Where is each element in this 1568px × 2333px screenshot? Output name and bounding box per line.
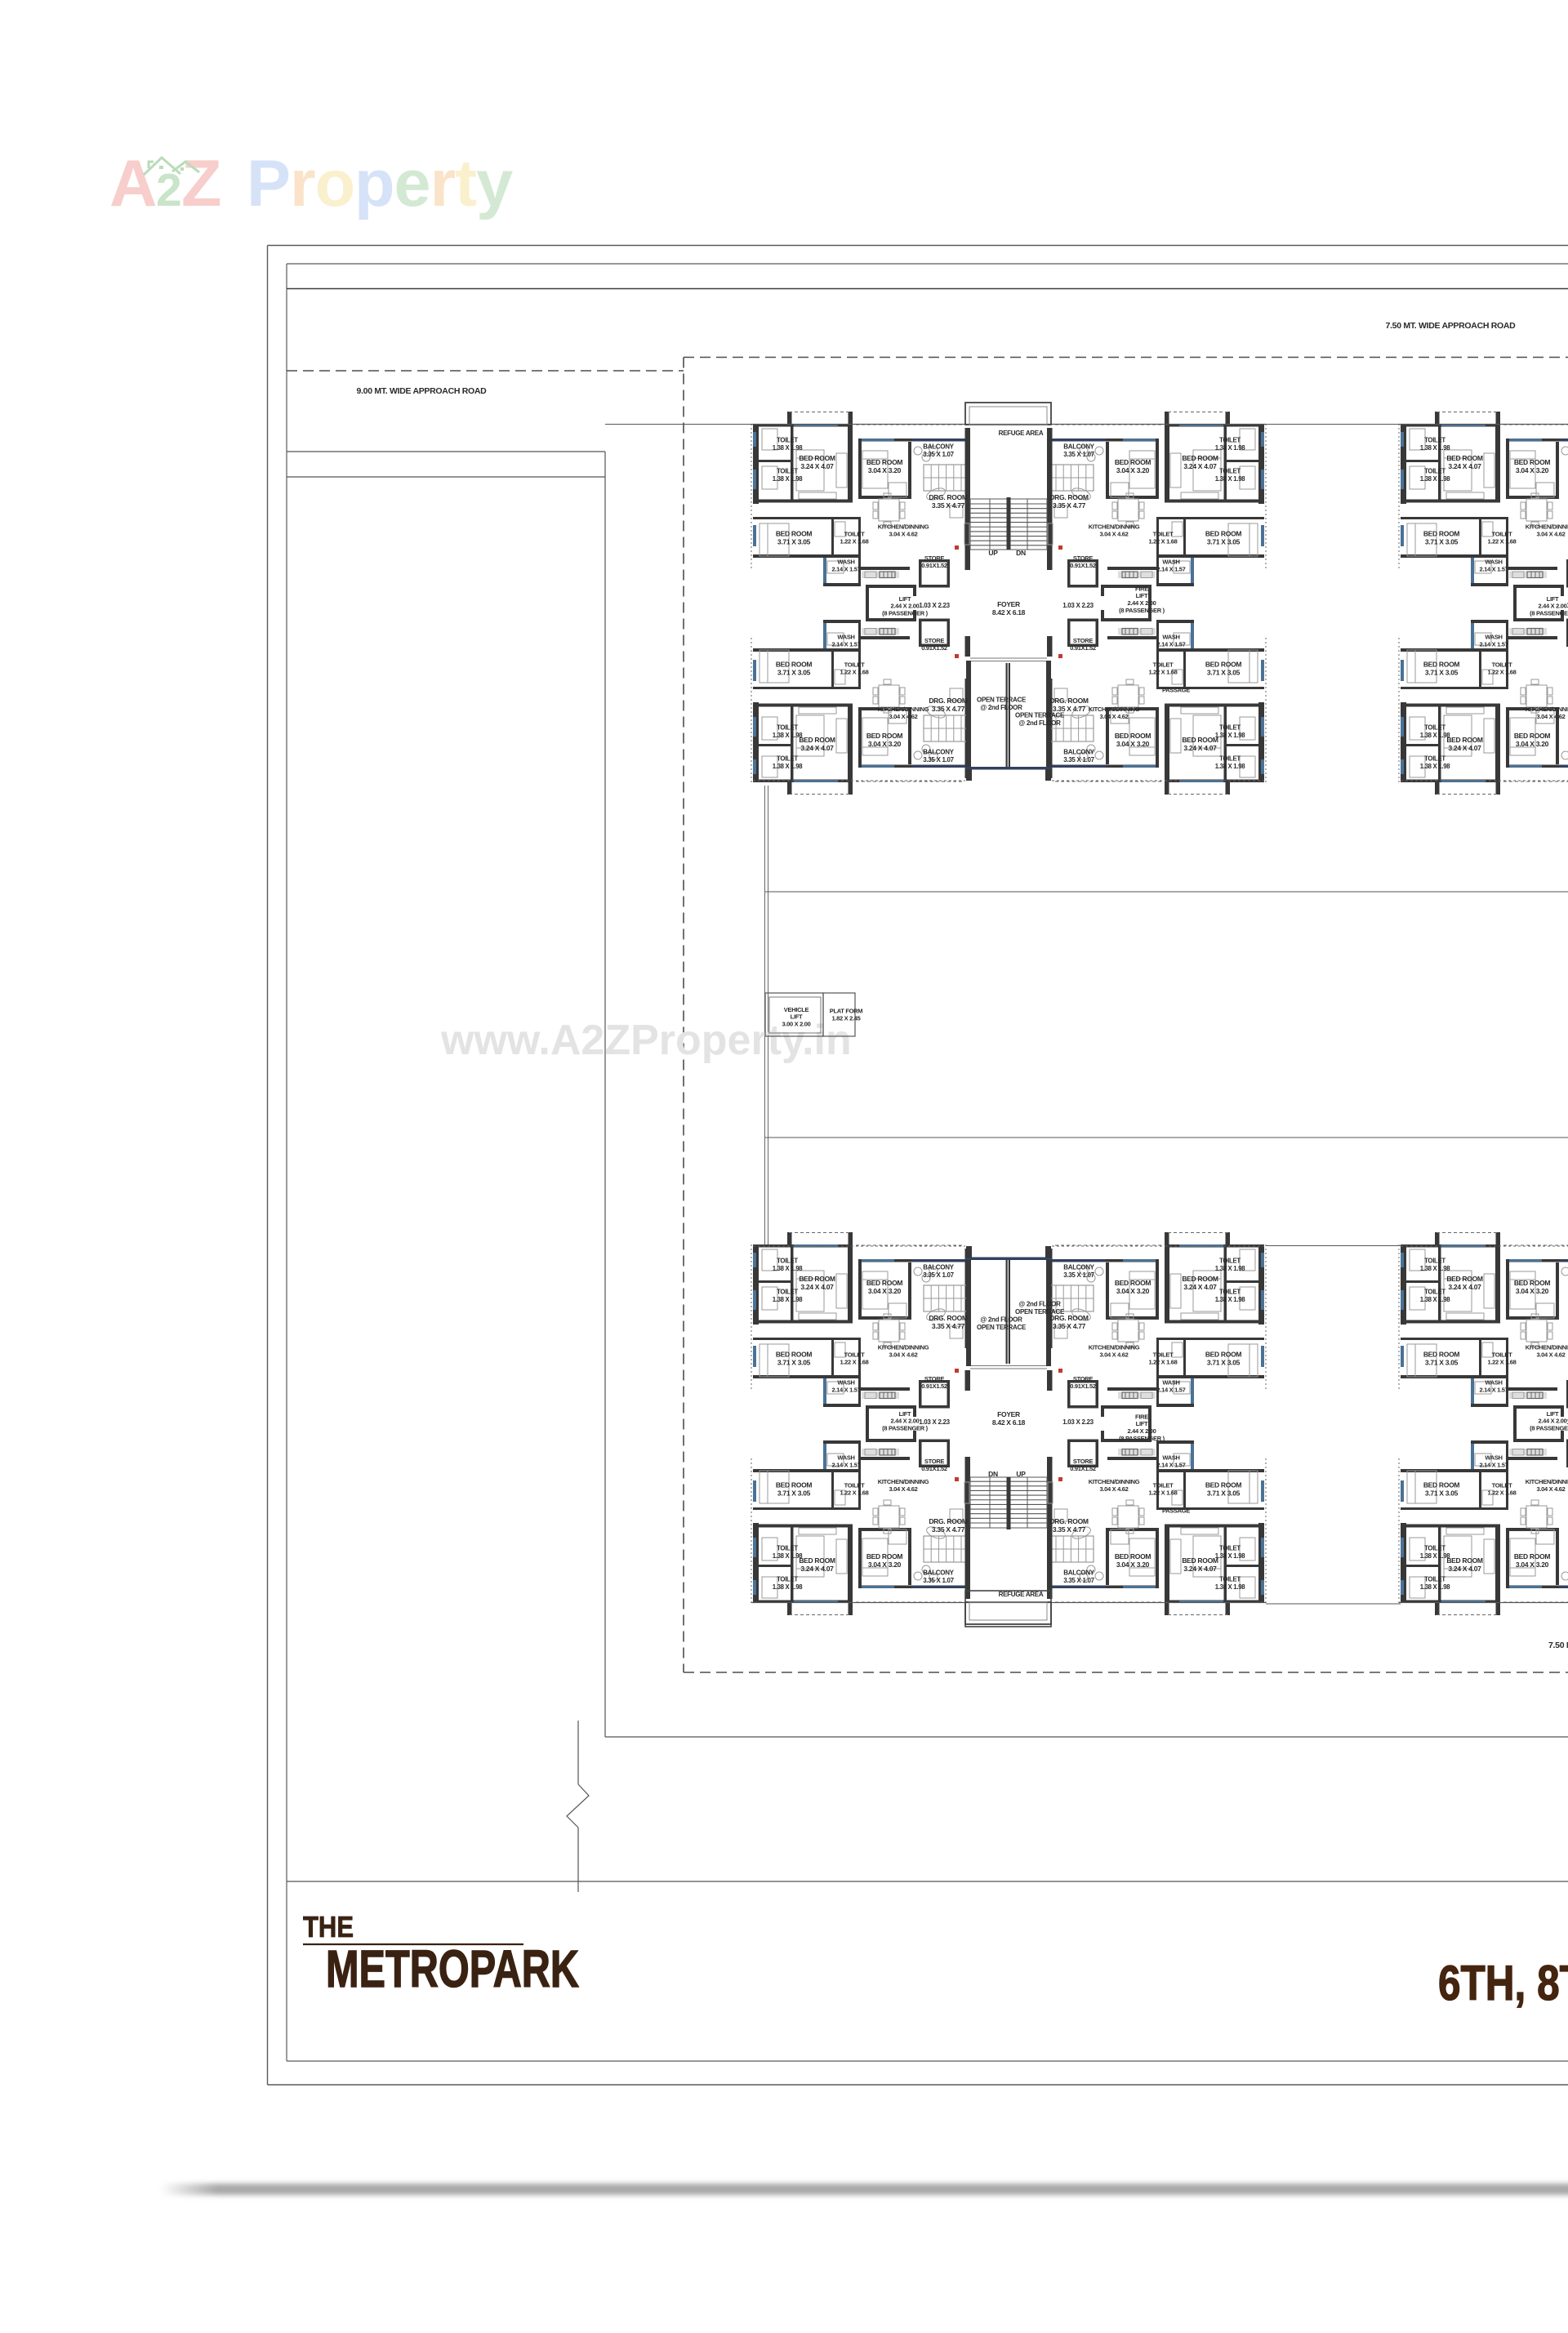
svg-text:1.22 X 1.68: 1.22 X 1.68: [1148, 1489, 1177, 1497]
svg-text:BED ROOM: BED ROOM: [1115, 458, 1151, 466]
svg-text:3.04 X 3.20: 3.04 X 3.20: [1116, 466, 1150, 474]
svg-text:BED ROOM: BED ROOM: [776, 1481, 813, 1489]
svg-text:3.71 X 3.05: 3.71 X 3.05: [777, 537, 811, 545]
svg-text:KITCHEN/DINNING: KITCHEN/DINNING: [1089, 1344, 1140, 1351]
svg-text:2.14 X 1.57: 2.14 X 1.57: [831, 641, 860, 648]
svg-text:0.91X1.52: 0.91X1.52: [1070, 1382, 1096, 1390]
svg-text:TOILET: TOILET: [1424, 1576, 1445, 1583]
svg-text:1.03 X 2.23: 1.03 X 2.23: [1062, 602, 1094, 609]
svg-text:BALCONY: BALCONY: [923, 1264, 954, 1271]
svg-text:1.38 X 1.98: 1.38 X 1.98: [1420, 1296, 1451, 1303]
svg-text:BED ROOM: BED ROOM: [1182, 1556, 1218, 1565]
svg-text:TOILET: TOILET: [1492, 1351, 1512, 1359]
svg-text:BED ROOM: BED ROOM: [1423, 530, 1460, 538]
svg-text:3.04 X 3.20: 3.04 X 3.20: [1116, 740, 1150, 748]
svg-text:7.50 MT. WIDE APPROACH ROAD: 7.50 MT. WIDE APPROACH ROAD: [1386, 321, 1517, 331]
svg-text:3.24 X 4.07: 3.24 X 4.07: [1183, 744, 1217, 752]
svg-text:1.22 X 1.68: 1.22 X 1.68: [840, 1359, 868, 1366]
svg-text:3.35 X 4.77: 3.35 X 4.77: [1053, 1525, 1086, 1534]
svg-text:BED ROOM: BED ROOM: [1205, 530, 1242, 538]
svg-text:TOILET: TOILET: [777, 1576, 798, 1583]
svg-text:1.03 X 2.23: 1.03 X 2.23: [919, 1418, 950, 1426]
svg-text:2.44 X 2.00: 2.44 X 2.00: [1127, 599, 1156, 607]
svg-text:BED ROOM: BED ROOM: [866, 1552, 903, 1561]
svg-text:BED ROOM: BED ROOM: [1205, 1351, 1242, 1359]
svg-text:BED ROOM: BED ROOM: [1423, 1351, 1460, 1359]
svg-text:3.04 X 4.62: 3.04 X 4.62: [1099, 531, 1128, 538]
svg-text:3.24 X 4.07: 3.24 X 4.07: [1448, 1565, 1481, 1573]
svg-text:3.71 X 3.05: 3.71 X 3.05: [777, 668, 811, 676]
svg-text:0.91X1.52: 0.91X1.52: [921, 644, 947, 652]
svg-text:3.35 X 1.07: 3.35 X 1.07: [1063, 451, 1094, 458]
svg-text:2.44 X 2.00: 2.44 X 2.00: [1538, 1418, 1566, 1425]
svg-text:0.91X1.52: 0.91X1.52: [921, 562, 947, 569]
svg-text:3.24 X 4.07: 3.24 X 4.07: [1183, 1283, 1217, 1291]
svg-text:KITCHEN/DINNING: KITCHEN/DINNING: [1526, 706, 1568, 713]
svg-text:3.04 X 3.20: 3.04 X 3.20: [1516, 1561, 1549, 1569]
svg-text:TOILET: TOILET: [1153, 661, 1174, 669]
svg-text:3.04 X 4.62: 3.04 X 4.62: [1099, 1485, 1128, 1493]
svg-text:WASH: WASH: [1485, 1379, 1502, 1387]
svg-text:DRG. ROOM: DRG. ROOM: [1049, 1517, 1089, 1525]
svg-text:BED ROOM: BED ROOM: [776, 530, 813, 538]
svg-text:BED ROOM: BED ROOM: [1514, 1552, 1551, 1561]
svg-text:OPEN TERRACE: OPEN TERRACE: [1015, 712, 1065, 719]
svg-text:STORE: STORE: [1073, 637, 1093, 644]
svg-text:3.04 X 3.20: 3.04 X 3.20: [868, 740, 902, 748]
svg-text:KITCHEN/DINNING: KITCHEN/DINNING: [1526, 523, 1568, 531]
svg-text:BED ROOM: BED ROOM: [1115, 1552, 1151, 1561]
svg-text:3.04 X 4.62: 3.04 X 4.62: [1536, 1351, 1565, 1359]
svg-text:(8 PASSENGER ): (8 PASSENGER ): [1530, 609, 1568, 617]
svg-text:TOILET: TOILET: [777, 724, 798, 732]
svg-text:3.71 X 3.05: 3.71 X 3.05: [1207, 668, 1241, 676]
svg-text:DRG. ROOM: DRG. ROOM: [929, 697, 968, 705]
svg-text:3.04 X 3.20: 3.04 X 3.20: [1116, 1561, 1150, 1569]
svg-text:TOILET: TOILET: [1424, 1258, 1445, 1265]
svg-text:WASH: WASH: [837, 1454, 854, 1462]
svg-text:TOILET: TOILET: [1219, 1576, 1241, 1583]
svg-text:0.91X1.52: 0.91X1.52: [1070, 644, 1096, 652]
svg-text:1.38 X 1.98: 1.38 X 1.98: [1215, 763, 1246, 770]
svg-text:3.35 X 1.07: 3.35 X 1.07: [1063, 1271, 1094, 1279]
svg-text:TOILET: TOILET: [844, 661, 865, 669]
svg-text:BED ROOM: BED ROOM: [799, 736, 835, 744]
svg-text:OPEN TERRACE: OPEN TERRACE: [977, 697, 1027, 704]
svg-text:UP: UP: [1016, 1470, 1026, 1478]
svg-text:TOILET: TOILET: [777, 1258, 798, 1265]
svg-text:1.22 X 1.68: 1.22 X 1.68: [840, 1489, 868, 1497]
svg-text:BED ROOM: BED ROOM: [776, 661, 813, 669]
svg-text:(8 PASSENGER ): (8 PASSENGER ): [1530, 1424, 1568, 1431]
svg-text:STORE: STORE: [924, 637, 944, 644]
svg-text:1.22 X 1.68: 1.22 X 1.68: [1487, 1489, 1516, 1497]
svg-text:BED ROOM: BED ROOM: [1514, 458, 1551, 466]
svg-text:3.04 X 4.62: 3.04 X 4.62: [1536, 1485, 1565, 1493]
svg-text:2.14 X 1.57: 2.14 X 1.57: [1479, 1462, 1508, 1469]
svg-text:@ 2nd FLOOR: @ 2nd FLOOR: [980, 1316, 1022, 1324]
svg-text:3.04 X 4.62: 3.04 X 4.62: [1536, 713, 1565, 720]
svg-text:STORE: STORE: [924, 554, 944, 562]
svg-text:PASSAGE: PASSAGE: [1162, 687, 1190, 694]
svg-text:BED ROOM: BED ROOM: [1115, 732, 1151, 740]
svg-text:1.38 X 1.98: 1.38 X 1.98: [1215, 475, 1246, 483]
svg-text:REFUGE AREA: REFUGE AREA: [999, 430, 1044, 437]
svg-text:0.91X1.52: 0.91X1.52: [921, 1382, 947, 1390]
svg-text:WASH: WASH: [1162, 1454, 1179, 1462]
svg-text:1.38 X 1.98: 1.38 X 1.98: [1215, 1552, 1246, 1560]
svg-text:3.04 X 3.20: 3.04 X 3.20: [1116, 1287, 1150, 1295]
svg-text:3.35 X 1.07: 3.35 X 1.07: [923, 1271, 954, 1279]
svg-text:TOILET: TOILET: [1492, 531, 1512, 538]
svg-text:3.00 X 2.00: 3.00 X 2.00: [782, 1020, 810, 1027]
svg-text:(8 PASSENGER ): (8 PASSENGER ): [882, 609, 928, 617]
svg-text:OPEN TERRACE: OPEN TERRACE: [1015, 1308, 1065, 1316]
svg-text:BED ROOM: BED ROOM: [866, 458, 903, 466]
svg-text:BED ROOM: BED ROOM: [1182, 454, 1218, 462]
svg-text:STORE: STORE: [924, 1458, 944, 1465]
svg-text:3.04 X 4.62: 3.04 X 4.62: [889, 1351, 917, 1359]
svg-text:0.91X1.52: 0.91X1.52: [921, 1465, 947, 1472]
svg-text:3.04 X 4.62: 3.04 X 4.62: [889, 1485, 917, 1493]
svg-text:3.71 X 3.05: 3.71 X 3.05: [777, 1358, 811, 1366]
svg-text:3.24 X 4.07: 3.24 X 4.07: [800, 744, 834, 752]
svg-text:KITCHEN/DINNING: KITCHEN/DINNING: [878, 706, 929, 713]
svg-text:3.35 X 1.07: 3.35 X 1.07: [923, 756, 954, 764]
svg-text:BED ROOM: BED ROOM: [1514, 732, 1551, 740]
svg-text:TOILET: TOILET: [1153, 1482, 1174, 1489]
svg-text:3.35 X 4.77: 3.35 X 4.77: [932, 1525, 965, 1534]
svg-text:3.71 X 3.05: 3.71 X 3.05: [1207, 537, 1241, 545]
svg-text:1.38 X 1.98: 1.38 X 1.98: [773, 444, 804, 452]
svg-text:LIFT: LIFT: [791, 1013, 803, 1021]
svg-text:BED ROOM: BED ROOM: [1446, 1275, 1483, 1283]
svg-text:TOILET: TOILET: [777, 1289, 798, 1296]
svg-text:2.14 X 1.57: 2.14 X 1.57: [1156, 641, 1185, 648]
svg-text:FOYER: FOYER: [997, 600, 1020, 608]
svg-text:BALCONY: BALCONY: [1063, 443, 1094, 451]
svg-text:3.71 X 3.05: 3.71 X 3.05: [1207, 1358, 1241, 1366]
svg-text:KITCHEN/DINNING: KITCHEN/DINNING: [878, 1344, 929, 1351]
svg-text:KITCHEN/DINNING: KITCHEN/DINNING: [1526, 1344, 1568, 1351]
svg-text:1.38 X 1.98: 1.38 X 1.98: [1215, 1265, 1246, 1272]
svg-text:FIRE: FIRE: [1135, 1413, 1148, 1420]
svg-text:WASH: WASH: [1485, 559, 1502, 566]
svg-text:TOILET: TOILET: [777, 437, 798, 444]
svg-text:2.14 X 1.57: 2.14 X 1.57: [831, 1387, 860, 1394]
svg-text:1.22 X 1.68: 1.22 X 1.68: [1487, 669, 1516, 676]
svg-text:TOILET: TOILET: [844, 531, 865, 538]
svg-text:Z: Z: [181, 147, 221, 220]
svg-text:BED ROOM: BED ROOM: [1205, 1481, 1242, 1489]
svg-text:1.38 X 1.98: 1.38 X 1.98: [1215, 1296, 1246, 1303]
svg-text:TOILET: TOILET: [1219, 724, 1241, 732]
svg-text:BED ROOM: BED ROOM: [799, 454, 835, 462]
svg-text:1.38 X 1.98: 1.38 X 1.98: [773, 1265, 804, 1272]
svg-text:(8 PASSENGER ): (8 PASSENGER ): [1119, 1435, 1165, 1442]
svg-text:BED ROOM: BED ROOM: [799, 1275, 835, 1283]
svg-text:A: A: [109, 147, 158, 220]
svg-text:2.44 X 2.00: 2.44 X 2.00: [890, 603, 919, 610]
svg-text:BED ROOM: BED ROOM: [1446, 1556, 1483, 1565]
svg-text:STORE: STORE: [1073, 554, 1093, 562]
svg-text:TOILET: TOILET: [1424, 437, 1445, 444]
svg-text:FIRE: FIRE: [1135, 585, 1148, 592]
svg-text:WASH: WASH: [1162, 559, 1179, 566]
svg-text:LIFT: LIFT: [1547, 1410, 1559, 1418]
svg-text:3.71 X 3.05: 3.71 X 3.05: [1425, 668, 1459, 676]
svg-text:1.38 X 1.98: 1.38 X 1.98: [1215, 444, 1246, 452]
svg-text:3.24 X 4.07: 3.24 X 4.07: [1183, 1565, 1217, 1573]
svg-text:BED ROOM: BED ROOM: [776, 1351, 813, 1359]
svg-text:1.38 X 1.98: 1.38 X 1.98: [1420, 444, 1451, 452]
svg-text:3.24 X 4.07: 3.24 X 4.07: [1448, 462, 1481, 470]
svg-text:3.35 X 1.07: 3.35 X 1.07: [923, 451, 954, 458]
svg-text:BALCONY: BALCONY: [1063, 1569, 1094, 1577]
svg-text:1.22 X 1.68: 1.22 X 1.68: [840, 538, 868, 545]
svg-text:BED ROOM: BED ROOM: [1115, 1279, 1151, 1287]
svg-text:8.42 X 6.18: 8.42 X 6.18: [992, 608, 1026, 617]
svg-text:TOILET: TOILET: [844, 1482, 865, 1489]
svg-text:OPEN TERRACE: OPEN TERRACE: [977, 1324, 1027, 1331]
svg-text:2.14 X 1.57: 2.14 X 1.57: [831, 566, 860, 573]
svg-text:1.38 X 1.98: 1.38 X 1.98: [1420, 475, 1451, 483]
svg-text:BED ROOM: BED ROOM: [1205, 661, 1242, 669]
svg-text:1.22 X 1.68: 1.22 X 1.68: [1148, 538, 1177, 545]
svg-text:TOILET: TOILET: [1424, 1545, 1445, 1552]
svg-text:STORE: STORE: [1073, 1375, 1093, 1382]
svg-text:DRG. ROOM: DRG. ROOM: [1049, 697, 1089, 705]
svg-text:WASH: WASH: [837, 559, 854, 566]
svg-text:1.22 X 1.68: 1.22 X 1.68: [1487, 1359, 1516, 1366]
svg-text:KITCHEN/DINNING: KITCHEN/DINNING: [878, 523, 929, 531]
svg-text:1.22 X 1.68: 1.22 X 1.68: [1487, 538, 1516, 545]
svg-text:WASH: WASH: [837, 1379, 854, 1387]
svg-text:3.35 X 4.77: 3.35 X 4.77: [932, 1322, 965, 1330]
svg-text:TOILET: TOILET: [1219, 1289, 1241, 1296]
svg-text:2.14 X 1.57: 2.14 X 1.57: [1479, 641, 1508, 648]
svg-text:TOILET: TOILET: [1492, 1482, 1512, 1489]
svg-text:1.38 X 1.98: 1.38 X 1.98: [1215, 732, 1246, 739]
svg-text:KITCHEN/DINNING: KITCHEN/DINNING: [1089, 523, 1140, 531]
svg-text:2.44 X 2.00: 2.44 X 2.00: [890, 1418, 919, 1425]
svg-text:3.71 X 3.05: 3.71 X 3.05: [1207, 1489, 1241, 1497]
svg-text:7.50 MT. WIDE APPROACH ROAD: 7.50 MT. WIDE APPROACH ROAD: [1548, 1641, 1568, 1650]
svg-text:FOYER: FOYER: [997, 1410, 1020, 1418]
svg-text:2.14 X 1.57: 2.14 X 1.57: [1156, 566, 1185, 573]
svg-text:UP: UP: [988, 549, 998, 557]
svg-text:1.38 X 1.98: 1.38 X 1.98: [1420, 1583, 1451, 1591]
svg-text:1.03 X 2.23: 1.03 X 2.23: [1062, 1418, 1094, 1426]
svg-text:WASH: WASH: [1485, 1454, 1502, 1462]
svg-text:KITCHEN/DINNING: KITCHEN/DINNING: [878, 1478, 929, 1485]
svg-text:3.04 X 4.62: 3.04 X 4.62: [1099, 713, 1128, 720]
svg-text:TOILET: TOILET: [777, 468, 798, 475]
svg-text:BED ROOM: BED ROOM: [1446, 454, 1483, 462]
svg-text:TOILET: TOILET: [844, 1351, 865, 1359]
svg-text:LIFT: LIFT: [1136, 1420, 1148, 1427]
svg-text:LIFT: LIFT: [1136, 592, 1148, 599]
svg-text:3.24 X 4.07: 3.24 X 4.07: [1183, 462, 1217, 470]
svg-text:3.35 X 4.77: 3.35 X 4.77: [932, 501, 965, 510]
svg-text:TOILET: TOILET: [1219, 755, 1241, 763]
svg-text:@ 2nd FLOOR: @ 2nd FLOOR: [1018, 1301, 1061, 1308]
svg-text:1.38 X 1.98: 1.38 X 1.98: [1420, 1265, 1451, 1272]
svg-text:BED ROOM: BED ROOM: [1423, 661, 1460, 669]
svg-text:REFUGE AREA: REFUGE AREA: [999, 1591, 1044, 1598]
svg-text:9.00 MT. WIDE APPROACH ROAD: 9.00 MT. WIDE APPROACH ROAD: [357, 386, 488, 396]
svg-text:LIFT: LIFT: [899, 1410, 911, 1418]
svg-text:2.44 X 2.00: 2.44 X 2.00: [1538, 603, 1566, 610]
svg-text:0.91X1.52: 0.91X1.52: [1070, 1465, 1096, 1472]
svg-text:TOILET: TOILET: [1424, 468, 1445, 475]
svg-text:TOILET: TOILET: [1153, 1351, 1174, 1359]
svg-text:Property: Property: [247, 147, 513, 220]
svg-text:BED ROOM: BED ROOM: [799, 1556, 835, 1565]
svg-text:LIFT: LIFT: [1547, 595, 1559, 603]
svg-text:3.04 X 4.62: 3.04 X 4.62: [889, 531, 917, 538]
svg-text:3.71 X 3.05: 3.71 X 3.05: [1425, 1489, 1459, 1497]
svg-text:3.35 X 1.07: 3.35 X 1.07: [1063, 756, 1094, 764]
svg-text:WASH: WASH: [1485, 634, 1502, 641]
svg-text:BALCONY: BALCONY: [923, 749, 954, 756]
svg-text:3.04 X 3.20: 3.04 X 3.20: [1516, 1287, 1549, 1295]
svg-text:1.82 X 2.45: 1.82 X 2.45: [831, 1015, 860, 1022]
svg-text:3.04 X 4.62: 3.04 X 4.62: [1536, 531, 1565, 538]
svg-text:BED ROOM: BED ROOM: [866, 1279, 903, 1287]
svg-text:BALCONY: BALCONY: [1063, 1264, 1094, 1271]
svg-text:1.38 X 1.98: 1.38 X 1.98: [1215, 1583, 1246, 1591]
svg-text:3.04 X 4.62: 3.04 X 4.62: [1099, 1351, 1128, 1359]
svg-text:3.04 X 3.20: 3.04 X 3.20: [1516, 740, 1549, 748]
svg-text:3.04 X 3.20: 3.04 X 3.20: [868, 466, 902, 474]
svg-text:3.35 X 4.77: 3.35 X 4.77: [1053, 1322, 1086, 1330]
svg-text:BED ROOM: BED ROOM: [1182, 1275, 1218, 1283]
svg-text:1.38 X 1.98: 1.38 X 1.98: [1420, 763, 1451, 770]
svg-text:TOILET: TOILET: [1153, 531, 1174, 538]
svg-text:BALCONY: BALCONY: [923, 443, 954, 451]
svg-text:TOILET: TOILET: [1219, 468, 1241, 475]
svg-text:TOILET: TOILET: [1424, 755, 1445, 763]
svg-text:DN: DN: [988, 1470, 998, 1478]
svg-text:1.22 X 1.68: 1.22 X 1.68: [1148, 669, 1177, 676]
svg-text:(8 PASSENGER ): (8 PASSENGER ): [1119, 607, 1165, 614]
svg-text:3.04 X 3.20: 3.04 X 3.20: [1516, 466, 1549, 474]
svg-text:3.71 X 3.05: 3.71 X 3.05: [777, 1489, 811, 1497]
svg-text:@ 2nd FLOOR: @ 2nd FLOOR: [980, 704, 1022, 711]
svg-text:3.04 X 4.62: 3.04 X 4.62: [889, 713, 917, 720]
svg-text:3.04 X 3.20: 3.04 X 3.20: [868, 1287, 902, 1295]
svg-text:TOILET: TOILET: [1492, 661, 1512, 669]
svg-text:3.24 X 4.07: 3.24 X 4.07: [1448, 1283, 1481, 1291]
svg-text:LIFT: LIFT: [899, 595, 911, 603]
svg-text:WASH: WASH: [1162, 634, 1179, 641]
svg-text:DRG. ROOM: DRG. ROOM: [929, 493, 968, 501]
svg-text:2.14 X 1.57: 2.14 X 1.57: [1156, 1462, 1185, 1469]
svg-text:3.71 X 3.05: 3.71 X 3.05: [1425, 1358, 1459, 1366]
svg-text:2.44 X 2.00: 2.44 X 2.00: [1127, 1427, 1156, 1435]
svg-text:8.42 X 6.18: 8.42 X 6.18: [992, 1418, 1026, 1427]
svg-text:PLAT FORM: PLAT FORM: [830, 1008, 863, 1015]
svg-text:DRG. ROOM: DRG. ROOM: [929, 1517, 968, 1525]
svg-text:0.91X1.52: 0.91X1.52: [1070, 562, 1096, 569]
svg-text:WASH: WASH: [1162, 1379, 1179, 1387]
svg-text:2.14 X 1.57: 2.14 X 1.57: [831, 1462, 860, 1469]
svg-text:3.71 X 3.05: 3.71 X 3.05: [1425, 537, 1459, 545]
svg-text:1.38 X 1.98: 1.38 X 1.98: [773, 763, 804, 770]
svg-text:3.35 X 4.77: 3.35 X 4.77: [932, 705, 965, 713]
svg-text:TOILET: TOILET: [1424, 1289, 1445, 1296]
svg-text:BALCONY: BALCONY: [1063, 749, 1094, 756]
svg-text:BED ROOM: BED ROOM: [1446, 736, 1483, 744]
svg-text:DN: DN: [1016, 549, 1026, 557]
svg-text:@ 2nd FLOOR: @ 2nd FLOOR: [1018, 719, 1061, 727]
svg-text:1.03 X 2.23: 1.03 X 2.23: [919, 602, 950, 609]
svg-text:BED ROOM: BED ROOM: [1423, 1481, 1460, 1489]
svg-text:BALCONY: BALCONY: [923, 1569, 954, 1577]
svg-text:3.24 X 4.07: 3.24 X 4.07: [800, 1283, 834, 1291]
svg-text:3.35 X 4.77: 3.35 X 4.77: [1053, 501, 1086, 510]
svg-text:VEHICLE: VEHICLE: [784, 1006, 809, 1013]
svg-text:1.38 X 1.98: 1.38 X 1.98: [773, 475, 804, 483]
svg-text:2.14 X 1.57: 2.14 X 1.57: [1479, 1387, 1508, 1394]
svg-text:KITCHEN/DINNING: KITCHEN/DINNING: [1089, 1478, 1140, 1485]
svg-text:3.35 X 1.07: 3.35 X 1.07: [1063, 1577, 1094, 1584]
svg-text:THE: THE: [303, 1910, 354, 1943]
svg-text:3.24 X 4.07: 3.24 X 4.07: [800, 462, 834, 470]
svg-text:2.14 X 1.57: 2.14 X 1.57: [1156, 1387, 1185, 1394]
svg-text:3.24 X 4.07: 3.24 X 4.07: [800, 1565, 834, 1573]
svg-text:1.22 X 1.68: 1.22 X 1.68: [1148, 1359, 1177, 1366]
svg-text:3.35 X 1.07: 3.35 X 1.07: [923, 1577, 954, 1584]
svg-text:KITCHEN/DINNING: KITCHEN/DINNING: [1089, 706, 1140, 713]
svg-text:STORE: STORE: [1073, 1458, 1093, 1465]
svg-text:DRG. ROOM: DRG. ROOM: [929, 1314, 968, 1322]
svg-text:6TH, 8TH & 10TH: 6TH, 8TH & 10TH: [1438, 1956, 1568, 2010]
svg-text:3.04 X 3.20: 3.04 X 3.20: [868, 1561, 902, 1569]
svg-text:TOILET: TOILET: [777, 1545, 798, 1552]
svg-text:WASH: WASH: [837, 634, 854, 641]
svg-text:3.24 X 4.07: 3.24 X 4.07: [1448, 744, 1481, 752]
svg-text:METROPARK: METROPARK: [326, 1939, 579, 1998]
svg-text:TOILET: TOILET: [1424, 724, 1445, 732]
svg-text:TOILET: TOILET: [777, 755, 798, 763]
svg-text:STORE: STORE: [924, 1375, 944, 1382]
svg-text:1.38 X 1.98: 1.38 X 1.98: [773, 1296, 804, 1303]
svg-text:KITCHEN/DINNING: KITCHEN/DINNING: [1526, 1478, 1568, 1485]
svg-text:TOILET: TOILET: [1219, 1545, 1241, 1552]
svg-text:2.14 X 1.57: 2.14 X 1.57: [1479, 566, 1508, 573]
svg-text:1.38 X 1.98: 1.38 X 1.98: [773, 1583, 804, 1591]
svg-text:PASSAGE: PASSAGE: [1162, 1507, 1190, 1515]
svg-text:BED ROOM: BED ROOM: [1182, 736, 1218, 744]
svg-text:BED ROOM: BED ROOM: [866, 732, 903, 740]
svg-text:1.22 X 1.68: 1.22 X 1.68: [840, 669, 868, 676]
svg-text:TOILET: TOILET: [1219, 1258, 1241, 1265]
svg-text:TOILET: TOILET: [1219, 437, 1241, 444]
svg-text:DRG. ROOM: DRG. ROOM: [1049, 493, 1089, 501]
svg-text:BED ROOM: BED ROOM: [1514, 1279, 1551, 1287]
